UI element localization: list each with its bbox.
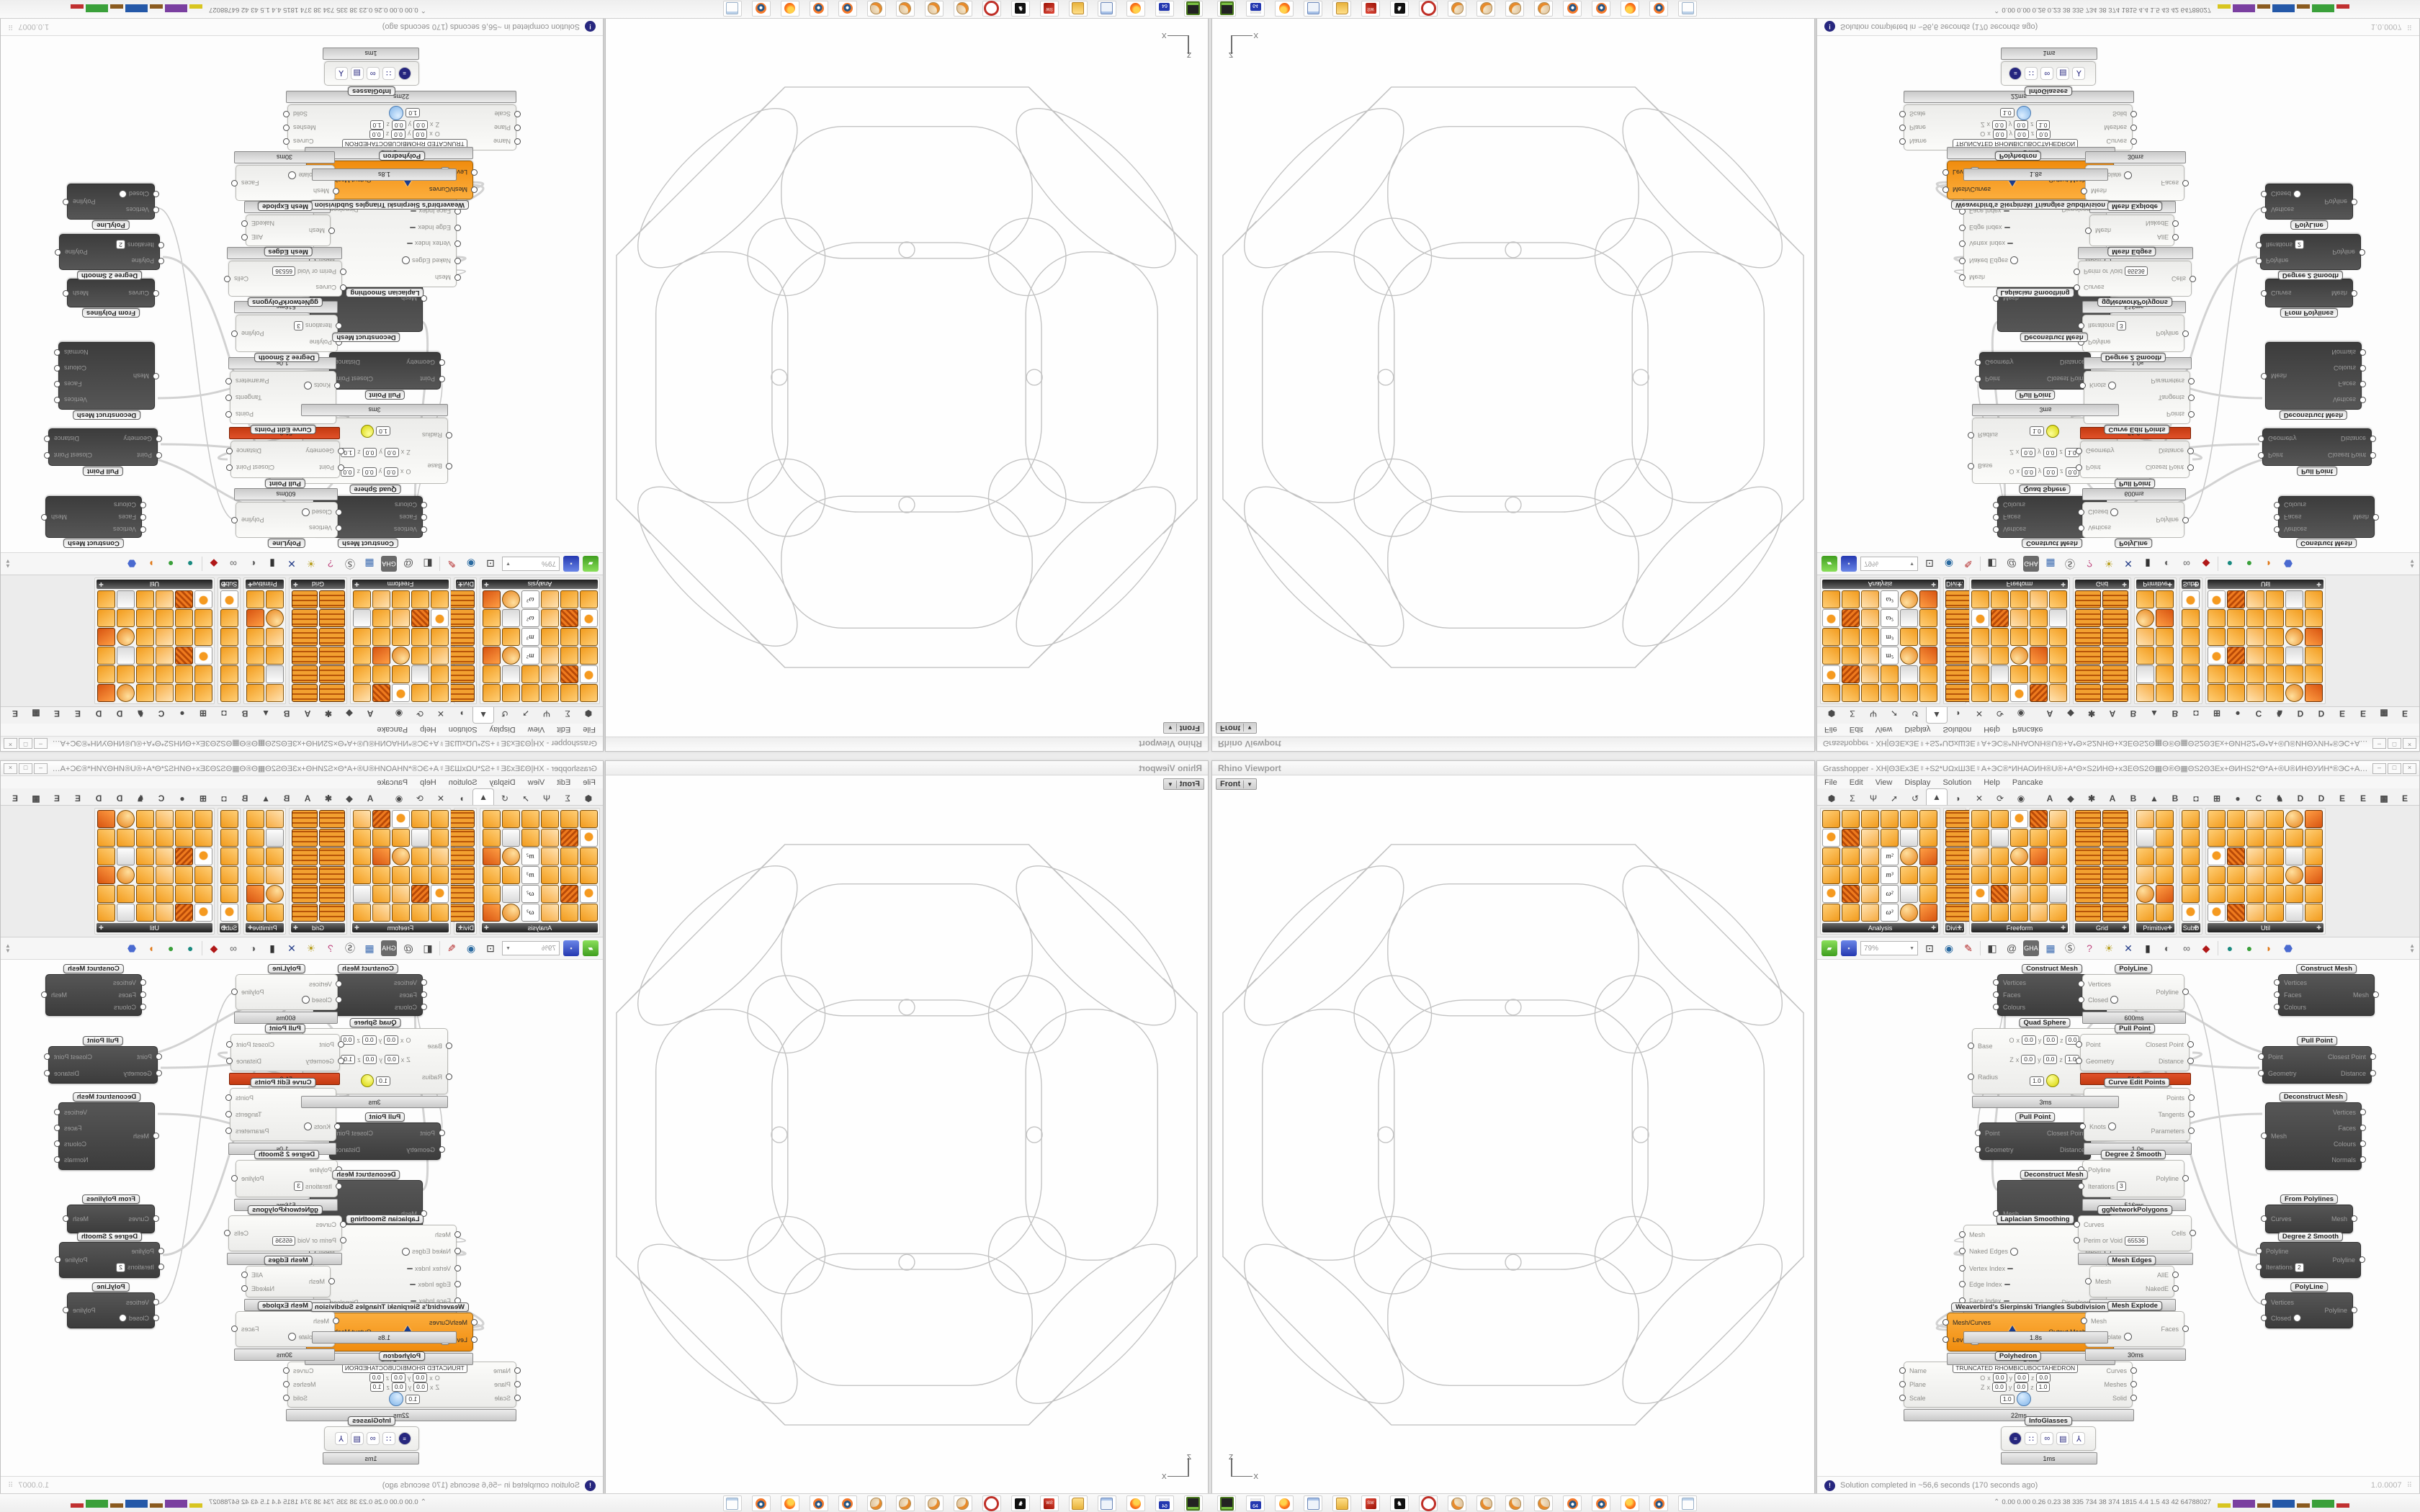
- input-port[interactable]: [2078, 509, 2084, 516]
- ribbon-component-icon[interactable]: [2182, 665, 2200, 683]
- input-port[interactable]: [1959, 1248, 1966, 1254]
- ribbon-component-icon[interactable]: [431, 628, 449, 646]
- taskbar-icon-palette[interactable]: [1534, 1, 1553, 17]
- ribbon-component-icon[interactable]: [1822, 628, 1840, 646]
- ribbon-component-icon[interactable]: [1971, 829, 1989, 847]
- ribbon-component-icon[interactable]: [353, 829, 371, 847]
- output-port[interactable]: [2190, 276, 2196, 282]
- tab-plugin-17[interactable]: E: [5, 707, 25, 721]
- ribbon-component-icon[interactable]: [1919, 665, 1937, 683]
- menu-item-file[interactable]: File: [1824, 778, 1837, 787]
- ribbon-component-icon[interactable]: [2030, 684, 2048, 702]
- ribbon-component-icon[interactable]: [2266, 866, 2284, 884]
- tab-plugin-15[interactable]: E: [47, 707, 67, 721]
- input-port[interactable]: [471, 186, 478, 193]
- open-file-icon[interactable]: ▰: [583, 556, 599, 572]
- toggle-dot[interactable]: [402, 1248, 410, 1256]
- toggle-dot[interactable]: [2110, 508, 2118, 516]
- ribbon-component-icon[interactable]: [246, 847, 264, 865]
- ribbon-component-icon[interactable]: [117, 866, 135, 884]
- ribbon-component-icon[interactable]: [1900, 665, 1918, 683]
- ribbon-group-label[interactable]: Divi…✚: [1945, 580, 1964, 589]
- ribbon-component-icon[interactable]: [483, 590, 501, 608]
- rhino-viewport-canvas[interactable]: Front▼ZX: [606, 18, 1208, 737]
- value-box[interactable]: 3: [294, 321, 303, 330]
- taskbar-icon-gear[interactable]: [1419, 1495, 1438, 1511]
- ribbon-component-icon[interactable]: [2266, 885, 2284, 903]
- ribbon-component-icon[interactable]: [449, 628, 475, 646]
- ribbon-component-icon[interactable]: [483, 847, 501, 865]
- input-port[interactable]: [2081, 1318, 2087, 1324]
- ribbon-component-icon[interactable]: [175, 647, 193, 665]
- tab-plugin-12[interactable]: D: [2290, 791, 2311, 805]
- ribbon-component-icon[interactable]: [1991, 590, 2009, 608]
- remote-icon[interactable]: @: [400, 940, 416, 956]
- gh-node-polyline[interactable]: VerticesClosedPolyline: [236, 502, 338, 538]
- input-port[interactable]: [1942, 1319, 1949, 1326]
- ribbon-component-icon[interactable]: [372, 628, 390, 646]
- ribbon-component-icon[interactable]: [2049, 647, 2067, 665]
- ribbon-component-icon[interactable]: [431, 590, 449, 608]
- ribbon-group-label[interactable]: Util✚: [97, 580, 212, 589]
- remote-icon[interactable]: @: [2004, 940, 2020, 956]
- ribbon-component-icon[interactable]: [1991, 829, 2009, 847]
- ribbon-group-label[interactable]: Primitive✚: [2136, 580, 2174, 589]
- grasshopper-canvas[interactable]: Construct MeshVerticesFacesColoursMeshQu…: [1, 36, 603, 552]
- ribbon-component-icon[interactable]: [136, 829, 154, 847]
- output-port[interactable]: [283, 138, 290, 145]
- menu-item-pancake[interactable]: Pancake: [377, 726, 408, 734]
- ribbon-component-icon[interactable]: ω²: [521, 885, 539, 903]
- ribbon-component-icon[interactable]: [1991, 904, 2009, 922]
- ribbon-component-icon[interactable]: [483, 866, 501, 884]
- xyz-value-box[interactable]: 0.0: [1993, 1373, 2007, 1382]
- maximize-button[interactable]: □: [19, 763, 32, 774]
- input-port[interactable]: [2261, 191, 2267, 197]
- ribbon-component-icon[interactable]: [2266, 590, 2284, 608]
- output-port[interactable]: [231, 517, 238, 523]
- taskbar-icon-folder[interactable]: [1332, 1, 1351, 17]
- ribbon-component-icon[interactable]: [1919, 829, 1937, 847]
- gh-node-degree-2-smooth[interactable]: PolylineIterations3Polyline: [2082, 1160, 2184, 1197]
- input-port[interactable]: [2085, 1278, 2092, 1284]
- package-icon[interactable]: ?: [323, 940, 339, 956]
- gh-node-pull-point[interactable]: PointGeometryClosest PointDistance: [329, 352, 441, 390]
- ribbon-component-icon[interactable]: [1861, 628, 1879, 646]
- tab-icon-2[interactable]: Ψ: [537, 707, 557, 721]
- ribbon-component-icon[interactable]: [2208, 590, 2226, 608]
- ribbon-component-icon[interactable]: [266, 684, 284, 702]
- xyz-value-box[interactable]: 0.0: [391, 130, 405, 139]
- ribbon-component-icon[interactable]: [483, 665, 501, 683]
- close-button[interactable]: ×: [4, 739, 17, 750]
- output-port[interactable]: [54, 397, 60, 403]
- menu-item-solution[interactable]: Solution: [449, 778, 478, 787]
- ribbon-component-icon[interactable]: [2030, 829, 2048, 847]
- ribbon-component-icon[interactable]: [1919, 847, 1937, 865]
- gh-node-polyhedron[interactable]: NamePlaneScaleTRUNCATED RHOMBICUBOCTAHED…: [287, 1362, 516, 1408]
- taskbar-icon-palette[interactable]: [1476, 1495, 1495, 1511]
- ribbon-component-icon[interactable]: [560, 866, 578, 884]
- ribbon-component-icon[interactable]: [266, 590, 284, 608]
- output-port[interactable]: [2351, 1215, 2357, 1222]
- ribbon-component-icon[interactable]: [136, 885, 154, 903]
- orange-ball-icon[interactable]: ◗: [143, 940, 159, 956]
- input-port[interactable]: [333, 1318, 339, 1324]
- ribbon-component-icon[interactable]: [2075, 904, 2101, 922]
- display-preview-icon[interactable]: ◉: [1941, 556, 1957, 572]
- tab-plugin-11[interactable]: ♞: [2269, 707, 2290, 721]
- ribbon-component-icon[interactable]: [2030, 609, 2048, 627]
- input-port[interactable]: [336, 981, 342, 987]
- toggle-dot[interactable]: [288, 171, 296, 179]
- gh-node-deconstruct-mesh[interactable]: MeshVerticesFacesColoursNormals: [2265, 1102, 2362, 1170]
- taskbar-icon-notepad[interactable]: [1678, 1495, 1697, 1511]
- dna-icon[interactable]: ✕: [2120, 940, 2136, 956]
- ribbon-component-icon[interactable]: [2208, 866, 2226, 884]
- taskbar-icon-blender[interactable]: [838, 1495, 857, 1511]
- taskbar-icon-notepad[interactable]: [723, 1, 742, 17]
- input-port[interactable]: [2076, 449, 2082, 455]
- ribbon-component-icon[interactable]: [560, 647, 578, 665]
- output-port[interactable]: [2359, 1156, 2366, 1163]
- ribbon-component-icon[interactable]: [2305, 810, 2323, 828]
- input-port[interactable]: [1959, 1231, 1966, 1238]
- ribbon-component-icon[interactable]: [2305, 847, 2323, 865]
- taskbar-icon-bat[interactable]: ♞: [1011, 1, 1030, 17]
- ribbon-component-icon[interactable]: [194, 829, 212, 847]
- output-port[interactable]: [231, 1175, 238, 1182]
- output-port[interactable]: [283, 125, 290, 131]
- ribbon-component-icon[interactable]: [1842, 904, 1860, 922]
- ribbon-component-icon[interactable]: [2049, 847, 2067, 865]
- menu-item-file[interactable]: File: [1824, 726, 1837, 734]
- zoom-level-dropdown[interactable]: 79%▼: [1860, 557, 1918, 571]
- output-port[interactable]: [54, 365, 60, 372]
- output-port[interactable]: [2370, 1053, 2376, 1060]
- tab-plugin-16[interactable]: ▩: [26, 791, 46, 805]
- value-box[interactable]: [2004, 227, 2010, 228]
- menu-item-display[interactable]: Display: [490, 726, 516, 734]
- input-port[interactable]: [2256, 242, 2262, 248]
- toggle-dot[interactable]: [2124, 171, 2132, 179]
- ribbon-component-icon[interactable]: [97, 609, 115, 627]
- scale-value-box[interactable]: 1.0: [376, 427, 390, 436]
- ribbon-component-icon[interactable]: [194, 904, 212, 922]
- gh-node-construct-mesh[interactable]: VerticesFacesColoursMesh: [2278, 496, 2375, 538]
- ribbon-component-icon[interactable]: [292, 590, 318, 608]
- input-port[interactable]: [156, 1053, 162, 1060]
- menu-item-solution[interactable]: Solution: [449, 726, 478, 734]
- input-port[interactable]: [153, 1133, 159, 1139]
- ribbon-component-icon[interactable]: [1822, 904, 1840, 922]
- ribbon-component-icon[interactable]: [411, 829, 429, 847]
- gh-node-pull-point[interactable]: PointGeometryClosest PointDistance: [1979, 352, 2091, 390]
- ribbon-component-icon[interactable]: m²: [521, 647, 539, 665]
- input-port[interactable]: [1899, 1395, 1906, 1401]
- value-box[interactable]: [2004, 210, 2009, 212]
- gh-node-pull-point[interactable]: PointGeometryClosest PointDistance: [2262, 1046, 2372, 1084]
- ribbon-component-icon[interactable]: [319, 647, 345, 665]
- toggle-dot[interactable]: [2124, 1333, 2132, 1341]
- toggle-dot[interactable]: [304, 1122, 312, 1130]
- ribbon-component-icon[interactable]: [2136, 866, 2154, 884]
- xyz-value-box[interactable]: 0.0: [1993, 130, 2007, 139]
- taskbar-icon-blender[interactable]: [1649, 1495, 1668, 1511]
- gem-icon[interactable]: ◆: [2198, 556, 2214, 572]
- ribbon-component-icon[interactable]: [2010, 829, 2028, 847]
- ribbon-component-icon[interactable]: [431, 810, 449, 828]
- ribbon-component-icon[interactable]: [175, 829, 193, 847]
- tab-plugin-6[interactable]: B: [235, 707, 255, 721]
- open-file-icon[interactable]: ▰: [1821, 940, 1837, 956]
- ribbon-component-icon[interactable]: [1900, 866, 1918, 884]
- ribbon-component-icon[interactable]: [2049, 904, 2067, 922]
- xyz-value-box[interactable]: 0.0: [362, 467, 377, 477]
- ribbon-component-icon[interactable]: [580, 847, 598, 865]
- output-port[interactable]: [2359, 397, 2366, 403]
- gh-node-from-polylines[interactable]: CurvesMesh: [67, 1205, 155, 1233]
- search-icon[interactable]: Ⓢ: [342, 556, 358, 572]
- ribbon-component-icon[interactable]: [1971, 590, 1989, 608]
- tab-plugin-0[interactable]: A: [2040, 707, 2060, 721]
- tab-plugin-14[interactable]: E: [68, 791, 88, 805]
- ribbon-component-icon[interactable]: [411, 647, 429, 665]
- ribbon-component-icon[interactable]: [1842, 866, 1860, 884]
- ribbon-group-label[interactable]: SubD✚: [220, 580, 238, 589]
- input-port[interactable]: [1993, 526, 1999, 533]
- output-port[interactable]: [2130, 1381, 2137, 1387]
- input-port[interactable]: [2261, 1133, 2267, 1139]
- ribbon-component-icon[interactable]: [246, 885, 264, 903]
- menu-item-view[interactable]: View: [528, 778, 545, 787]
- ribbon-component-icon[interactable]: [2030, 847, 2048, 865]
- ribbon-component-icon[interactable]: [2246, 665, 2264, 683]
- output-port[interactable]: [2182, 180, 2189, 186]
- zoom-extents-icon[interactable]: ⊡: [483, 556, 498, 572]
- ribbon-component-icon[interactable]: [411, 810, 429, 828]
- ribbon-component-icon[interactable]: [1881, 829, 1899, 847]
- xyz-value-box[interactable]: 0.0: [413, 120, 428, 130]
- ribbon-component-icon[interactable]: [1842, 684, 1860, 702]
- green-ball-icon[interactable]: ●: [163, 556, 179, 572]
- ribbon-component-icon[interactable]: m³: [1881, 866, 1899, 884]
- ribbon-component-icon[interactable]: ω²: [1881, 885, 1899, 903]
- ribbon-component-icon[interactable]: [156, 885, 174, 903]
- input-port[interactable]: [340, 269, 346, 275]
- ribbon-component-icon[interactable]: [2285, 885, 2303, 903]
- input-port[interactable]: [2274, 502, 2280, 508]
- tab-plugin-14[interactable]: E: [2332, 707, 2352, 721]
- ribbon-component-icon[interactable]: [266, 665, 284, 683]
- tab-plugin-16[interactable]: ▩: [2374, 707, 2394, 721]
- input-port[interactable]: [1899, 1367, 1906, 1374]
- sketch-icon[interactable]: ✎: [444, 556, 460, 572]
- tab-plugin-8[interactable]: ⊞: [193, 791, 213, 805]
- zoom-extents-icon[interactable]: ⊡: [483, 940, 498, 956]
- ribbon-component-icon[interactable]: [2285, 609, 2303, 627]
- tab-icon-4[interactable]: ↺: [1905, 791, 1925, 805]
- ribbon-component-icon[interactable]: [194, 810, 212, 828]
- tab-icon-2[interactable]: Ψ: [537, 791, 557, 805]
- ribbon-component-icon[interactable]: [483, 810, 501, 828]
- search-icon[interactable]: Ⓢ: [2062, 940, 2078, 956]
- save-file-icon[interactable]: ▪: [1841, 556, 1857, 572]
- ribbon-component-icon[interactable]: [431, 866, 449, 884]
- ribbon-group-label[interactable]: Grid✚: [2075, 580, 2129, 589]
- ribbon-component-icon[interactable]: [2305, 684, 2323, 702]
- output-port[interactable]: [2359, 1125, 2366, 1131]
- ribbon-component-icon[interactable]: [2049, 590, 2067, 608]
- ribbon-component-icon[interactable]: [449, 866, 475, 884]
- taskbar-icon-calculator[interactable]: [1304, 1495, 1322, 1511]
- ribbon-component-icon[interactable]: [411, 684, 429, 702]
- menu-item-pancake[interactable]: Pancake: [2012, 726, 2043, 734]
- ribbon-component-icon[interactable]: [521, 829, 539, 847]
- bulb-icon[interactable]: ☀: [2101, 556, 2117, 572]
- ribbon-component-icon[interactable]: [1971, 904, 1989, 922]
- input-port[interactable]: [2079, 382, 2086, 389]
- ribbon-component-icon[interactable]: [2049, 665, 2067, 683]
- ribbon-component-icon[interactable]: [97, 628, 115, 646]
- ribbon-group-label[interactable]: Divi…✚: [456, 923, 475, 932]
- tab-icon-5[interactable]: ▲: [472, 788, 494, 805]
- ribbon-component-icon[interactable]: [1971, 665, 1989, 683]
- taskbar-icon-calculator[interactable]: [1098, 1, 1116, 17]
- ribbon-component-icon[interactable]: [483, 628, 501, 646]
- output-port[interactable]: [225, 1111, 232, 1117]
- ribbon-component-icon[interactable]: [2010, 810, 2028, 828]
- gh-node-degree-2-smooth[interactable]: PolylineIterations2Polyline: [59, 1242, 160, 1278]
- ribbon-component-icon[interactable]: [246, 866, 264, 884]
- green-ball-icon[interactable]: ●: [2241, 940, 2257, 956]
- output-port[interactable]: [2188, 395, 2195, 401]
- search-icon[interactable]: Ⓢ: [342, 940, 358, 956]
- ribbon-component-icon[interactable]: [1822, 829, 1840, 847]
- dna-icon[interactable]: ✕: [284, 940, 300, 956]
- output-port[interactable]: [2130, 111, 2137, 117]
- ribbon-component-icon[interactable]: [392, 628, 410, 646]
- menu-item-file[interactable]: File: [583, 778, 596, 787]
- input-port[interactable]: [140, 502, 146, 508]
- gh-node-pull-point[interactable]: PointGeometryClosest PointDistance: [48, 428, 158, 466]
- scale-value-box[interactable]: 1.0: [405, 109, 420, 118]
- taskbar-icon-firefox[interactable]: [1621, 1, 1639, 17]
- ribbon-group-label[interactable]: SubD✚: [2182, 580, 2200, 589]
- ribbon-component-icon[interactable]: [156, 609, 174, 627]
- tab-plugin-4[interactable]: B: [2123, 707, 2143, 721]
- toggle-dot[interactable]: [304, 382, 312, 390]
- ribbon-component-icon[interactable]: [1842, 847, 1860, 865]
- ribbon-component-icon[interactable]: [1900, 829, 1918, 847]
- input-port[interactable]: [140, 514, 146, 521]
- tab-plugin-2[interactable]: ✱: [318, 707, 339, 721]
- ribbon-component-icon[interactable]: [431, 885, 449, 903]
- ribbon-component-icon[interactable]: [2030, 665, 2048, 683]
- output-port[interactable]: [2182, 989, 2189, 995]
- ribbon-group-label[interactable]: Util✚: [2208, 923, 2323, 932]
- input-port[interactable]: [454, 225, 461, 231]
- ribbon-component-icon[interactable]: [220, 609, 238, 627]
- tab-icon-1[interactable]: Σ: [557, 707, 578, 721]
- ribbon-component-icon[interactable]: [319, 847, 345, 865]
- input-port[interactable]: [1993, 979, 1999, 986]
- ribbon-component-icon[interactable]: [136, 847, 154, 865]
- ribbon-component-icon[interactable]: [1919, 684, 1937, 702]
- tab-icon-1[interactable]: Σ: [557, 791, 578, 805]
- tab-icon-0[interactable]: ⬢: [578, 791, 599, 805]
- menu-item-help[interactable]: Help: [1984, 726, 2000, 734]
- ribbon-component-icon[interactable]: [1822, 684, 1840, 702]
- ribbon-component-icon[interactable]: [1991, 684, 2009, 702]
- ribbon-component-icon[interactable]: [2266, 810, 2284, 828]
- gh-node-mesh-edges[interactable]: MeshAllENakedE: [2089, 215, 2174, 246]
- tab-icon-7[interactable]: ✕: [431, 791, 451, 805]
- ribbon-component-icon[interactable]: [2030, 866, 2048, 884]
- screen-icon[interactable]: ▦: [2043, 940, 2058, 956]
- tab-plugin-0[interactable]: A: [2040, 791, 2060, 805]
- taskbar-icon-blender[interactable]: [752, 1495, 771, 1511]
- ribbon-component-icon[interactable]: [541, 829, 559, 847]
- ribbon-component-icon[interactable]: [2246, 590, 2264, 608]
- ribbon-component-icon[interactable]: [2136, 665, 2154, 683]
- tab-plugin-3[interactable]: A: [297, 707, 318, 721]
- ribbon-component-icon[interactable]: m²: [1881, 847, 1899, 865]
- tab-icon-5[interactable]: ▲: [472, 707, 494, 724]
- gh-node-polyline[interactable]: VerticesClosedPolyline: [2265, 184, 2353, 220]
- output-port[interactable]: [63, 199, 69, 205]
- ribbon-component-icon[interactable]: [541, 810, 559, 828]
- remote-icon[interactable]: @: [2004, 556, 2020, 572]
- input-port[interactable]: [2258, 1070, 2264, 1076]
- ribbon-component-icon[interactable]: [2010, 609, 2028, 627]
- xyz-value-box[interactable]: 0.0: [2036, 130, 2051, 139]
- input-port[interactable]: [156, 1070, 162, 1076]
- menu-item-help[interactable]: Help: [1984, 778, 2000, 787]
- ribbon-component-icon[interactable]: [1900, 684, 1918, 702]
- ribbon-component-icon[interactable]: [2305, 628, 2323, 646]
- tab-plugin-7[interactable]: ◘: [214, 791, 234, 805]
- ribbon-component-icon[interactable]: [2102, 904, 2128, 922]
- input-port[interactable]: [1959, 274, 1966, 281]
- ribbon-component-icon[interactable]: [2136, 829, 2154, 847]
- ribbon-component-icon[interactable]: [2156, 665, 2174, 683]
- ribbon-component-icon[interactable]: [560, 628, 578, 646]
- ribbon-component-icon[interactable]: [502, 810, 520, 828]
- masks-icon[interactable]: ∞: [225, 556, 241, 572]
- taskbar-icon-palette[interactable]: [1505, 1, 1524, 17]
- menu-item-view[interactable]: View: [528, 726, 545, 734]
- tab-plugin-11[interactable]: ♞: [130, 791, 151, 805]
- input-port[interactable]: [1975, 377, 1981, 383]
- ribbon-component-icon[interactable]: [372, 904, 390, 922]
- input-port[interactable]: [1959, 1281, 1966, 1287]
- tab-plugin-3[interactable]: A: [2102, 707, 2123, 721]
- taskbar-icon-palette[interactable]: [925, 1, 944, 17]
- gh-node-mesh-edges[interactable]: MeshAllENakedE: [246, 215, 331, 246]
- input-port[interactable]: [1959, 240, 1966, 247]
- ribbon-component-icon[interactable]: [2030, 904, 2048, 922]
- value-box[interactable]: 65536: [272, 1236, 295, 1246]
- xyz-value-box[interactable]: 0.0: [413, 1373, 427, 1382]
- input-port[interactable]: [1993, 514, 1999, 521]
- tab-icon-3[interactable]: ➚: [516, 707, 536, 721]
- ribbon-component-icon[interactable]: [266, 609, 284, 627]
- output-port[interactable]: [54, 1140, 60, 1147]
- xyz-value-box[interactable]: 0.0: [2022, 467, 2036, 477]
- tab-plugin-1[interactable]: ◆: [2061, 707, 2081, 721]
- ribbon-component-icon[interactable]: [580, 590, 598, 608]
